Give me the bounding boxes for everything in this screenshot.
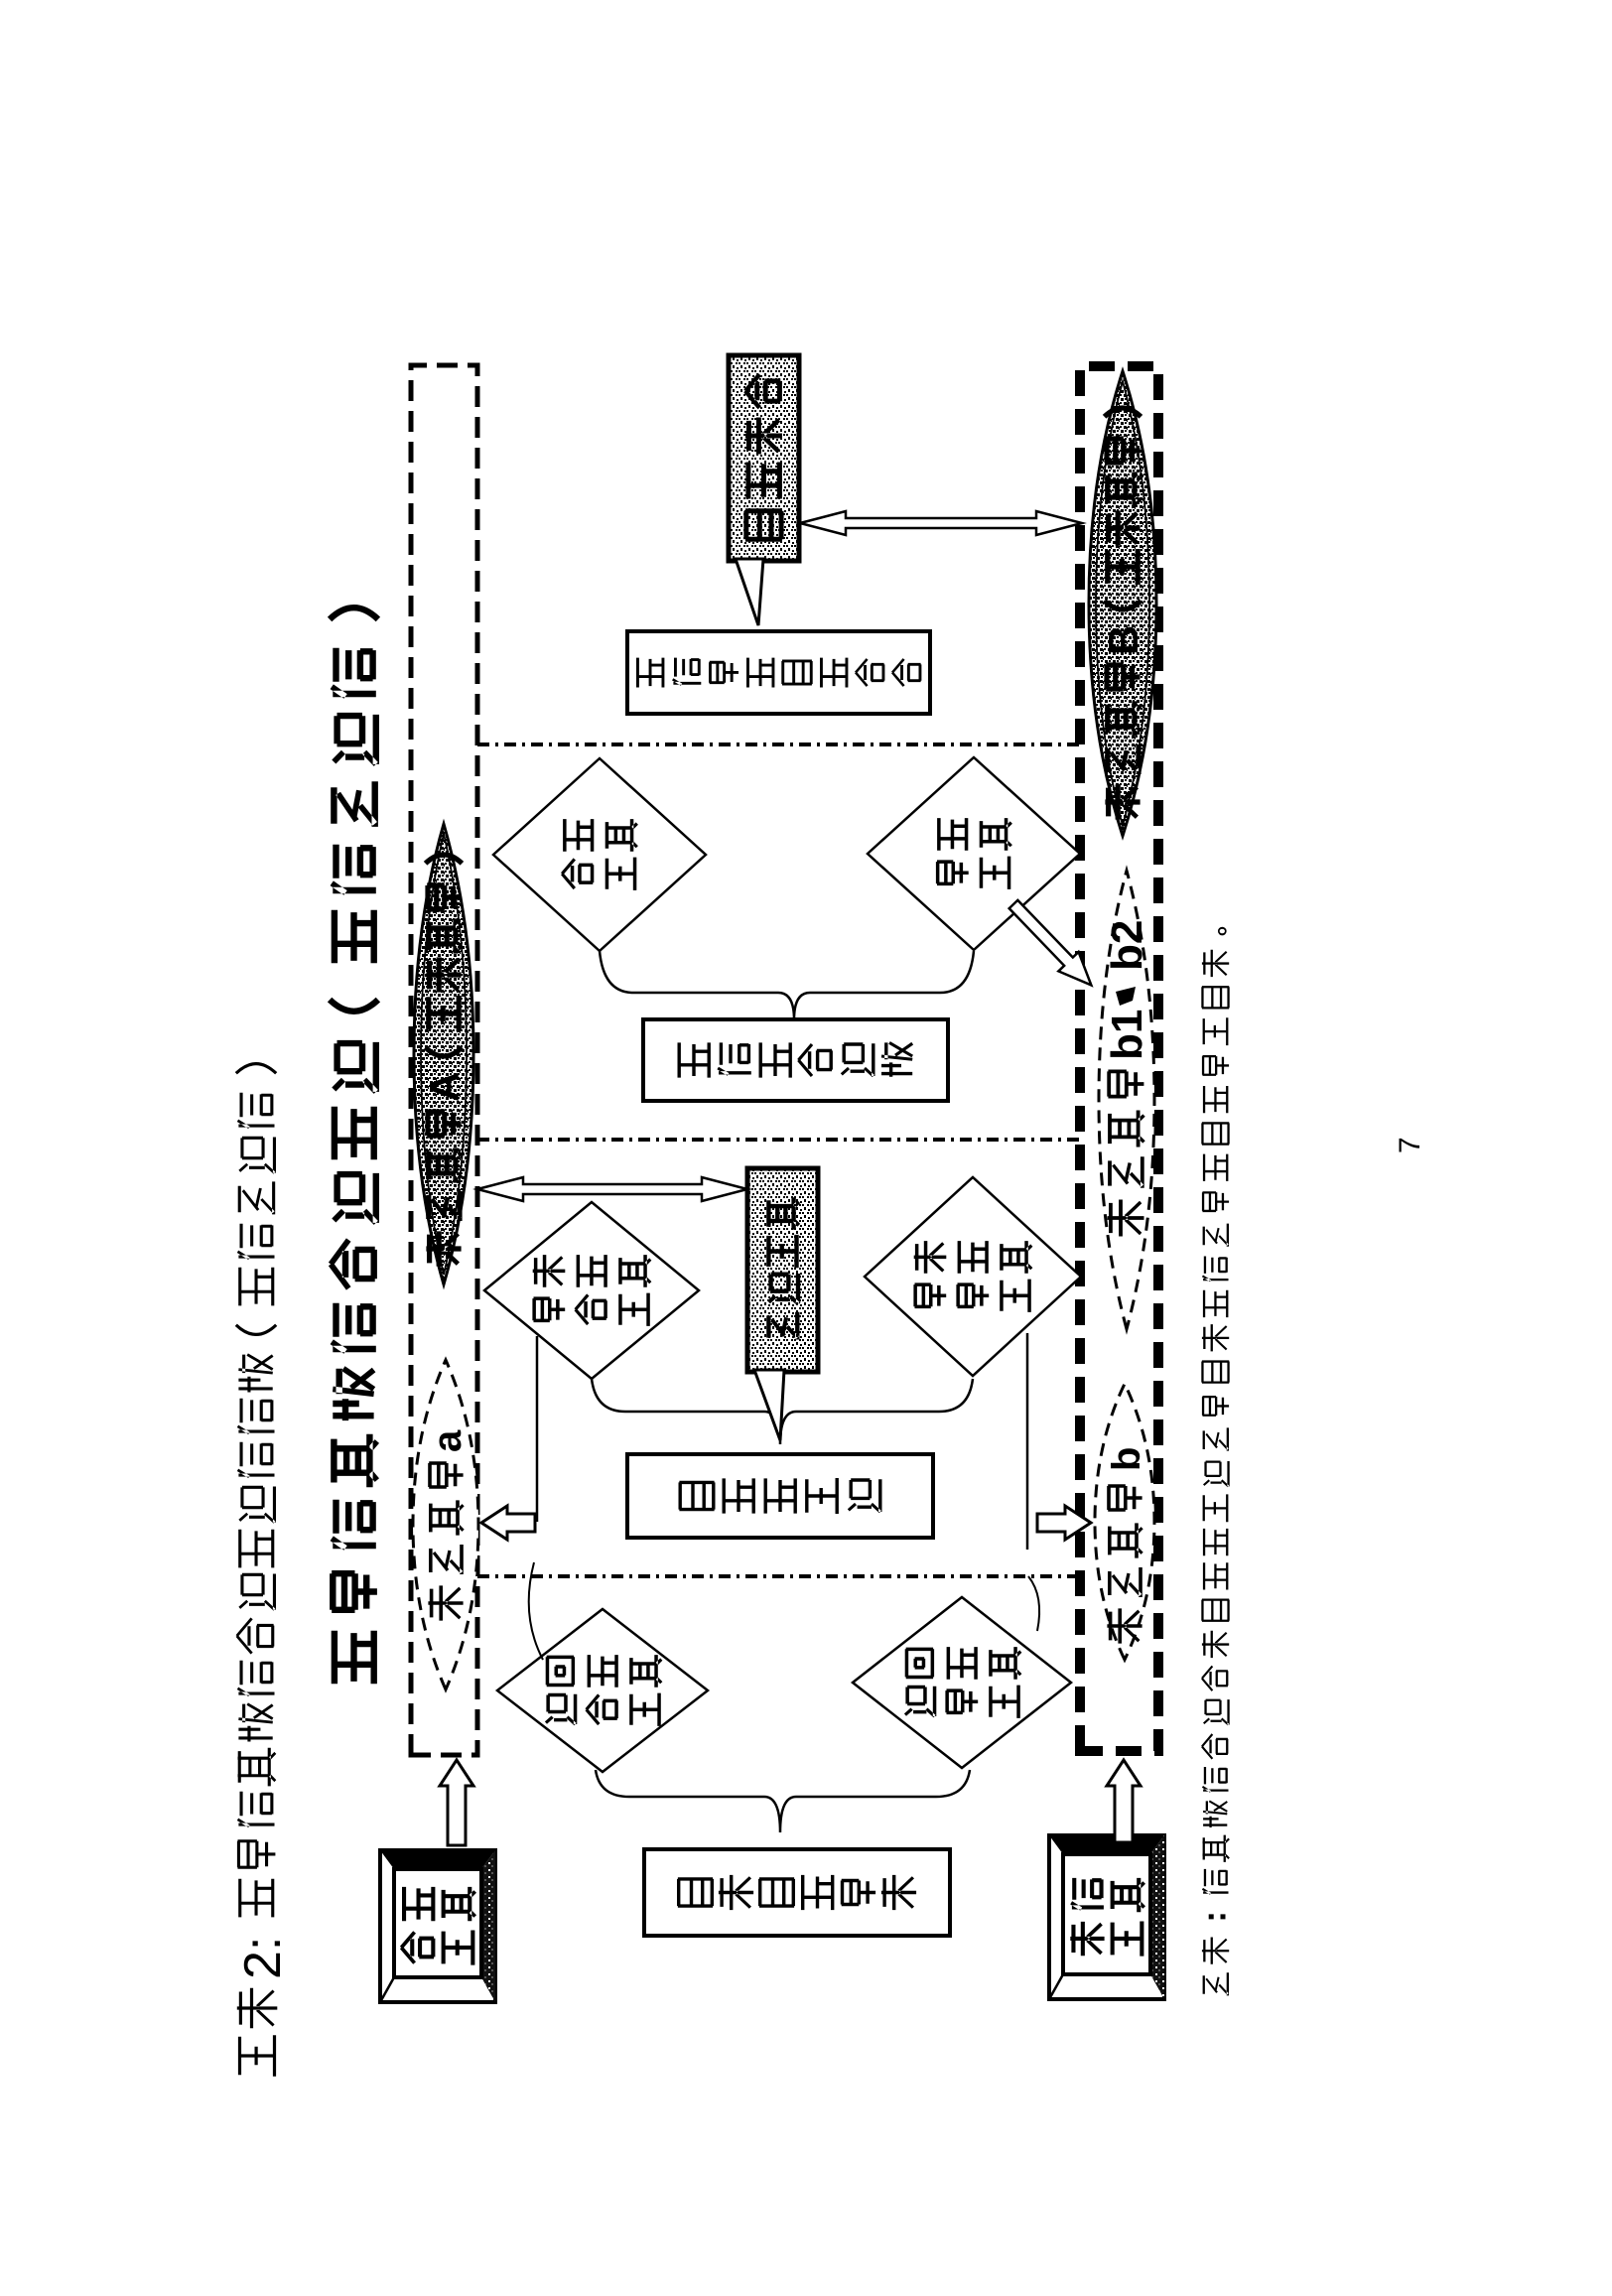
svg-text:b2: b2 [1103, 920, 1151, 971]
svg-text:b1: b1 [1103, 1010, 1151, 1060]
svg-text:b: b [1105, 1447, 1148, 1471]
svg-text:A: A [421, 1072, 468, 1102]
svg-text:a: a [426, 1429, 470, 1452]
svg-text:2:: 2: [234, 1937, 292, 1979]
svg-text:7: 7 [1394, 1137, 1426, 1153]
svg-text:B: B [1100, 625, 1146, 655]
